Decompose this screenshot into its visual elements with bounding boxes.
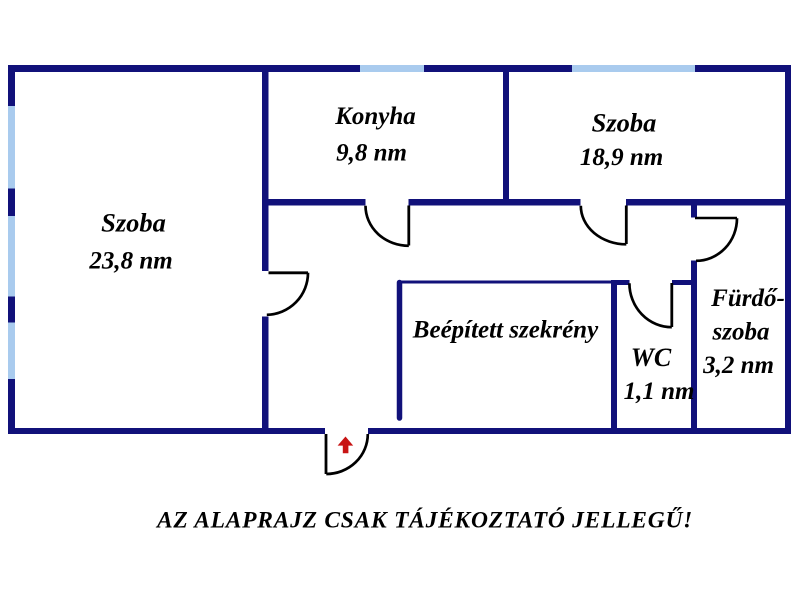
- svg-text:szoba: szoba: [712, 319, 770, 346]
- svg-text:9,8 nm: 9,8 nm: [336, 140, 407, 167]
- svg-text:Fürdő-: Fürdő-: [710, 285, 785, 312]
- svg-text:Beépített szekrény: Beépített szekrény: [412, 317, 599, 344]
- svg-text:Szoba: Szoba: [101, 208, 166, 238]
- svg-text:Szoba: Szoba: [592, 108, 657, 138]
- svg-text:1,1 nm: 1,1 nm: [624, 378, 695, 405]
- svg-text:AZ ALAPRAJZ CSAK TÁJÉKOZTATÓ J: AZ ALAPRAJZ CSAK TÁJÉKOZTATÓ JELLEGŰ!: [155, 507, 693, 534]
- svg-text:23,8 nm: 23,8 nm: [88, 248, 172, 275]
- svg-text:18,9 nm: 18,9 nm: [580, 144, 663, 171]
- svg-text:3,2 nm: 3,2 nm: [702, 352, 774, 379]
- svg-text:Konyha: Konyha: [334, 103, 416, 130]
- svg-text:WC: WC: [631, 343, 672, 372]
